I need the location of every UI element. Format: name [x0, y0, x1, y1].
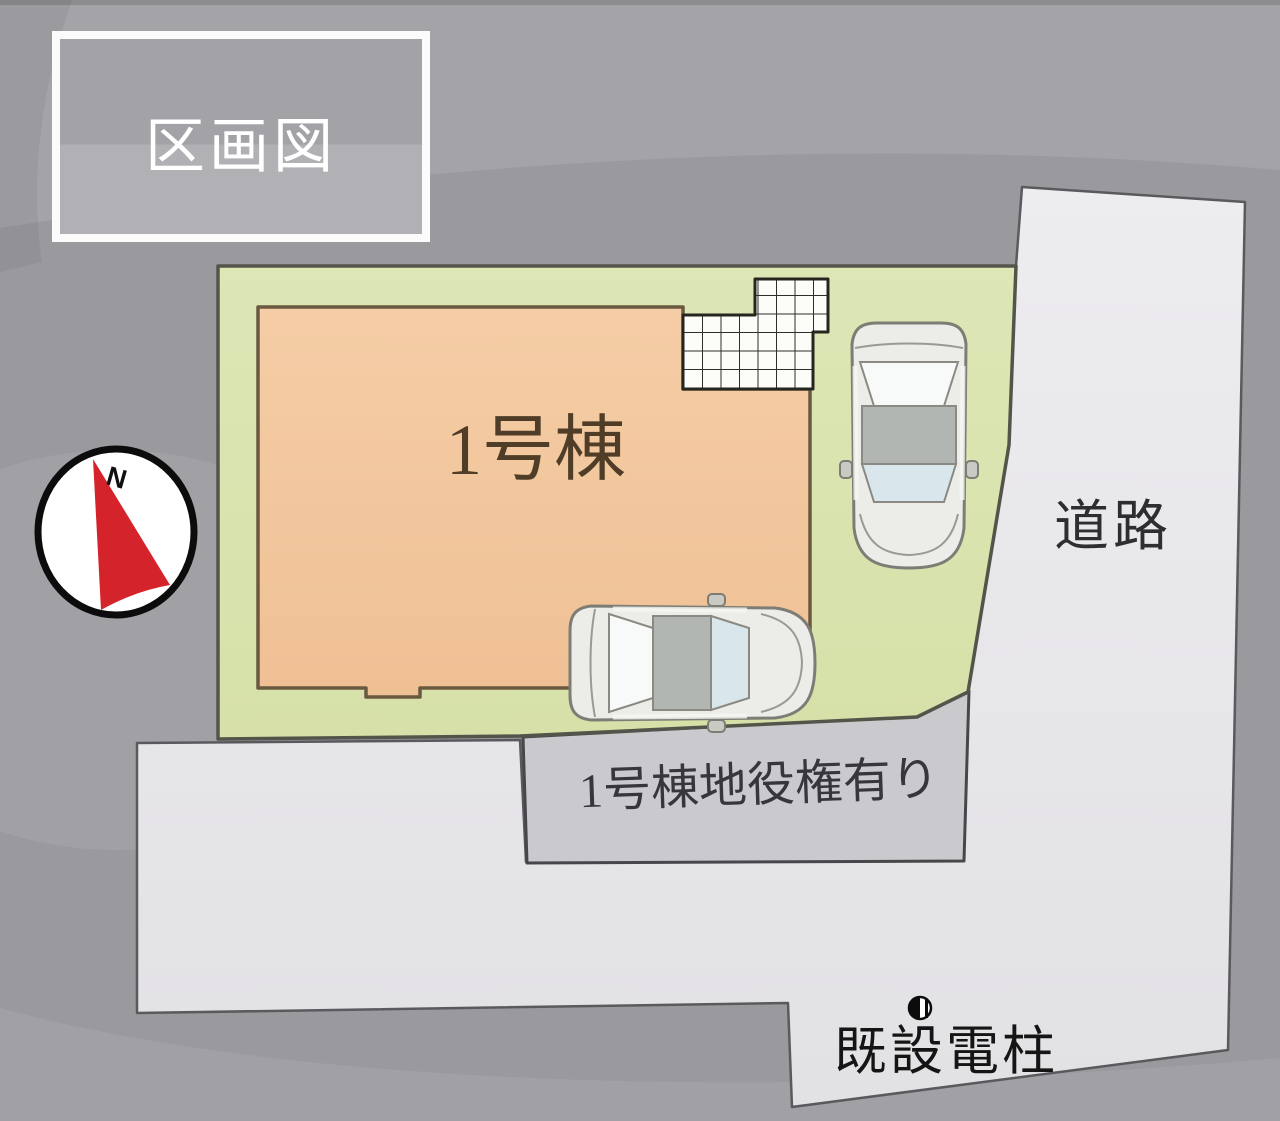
utility-pole-icon	[909, 997, 931, 1019]
page-title: 区画図	[145, 88, 337, 185]
site-plan-page: N 区画図 1号棟 道路 1号棟地役権有り 既設電柱	[0, 0, 1280, 1121]
building-label: 1号棟	[336, 414, 736, 486]
background-texture	[0, 0, 1280, 5]
car-top-view-1	[840, 323, 978, 568]
utility-pole-label: 既設電柱	[791, 1026, 1101, 1079]
title-box: 区画図	[52, 31, 430, 242]
car-top-view-2	[570, 594, 815, 732]
compass-icon: N	[38, 449, 194, 615]
road-label: 道路	[1013, 499, 1213, 554]
